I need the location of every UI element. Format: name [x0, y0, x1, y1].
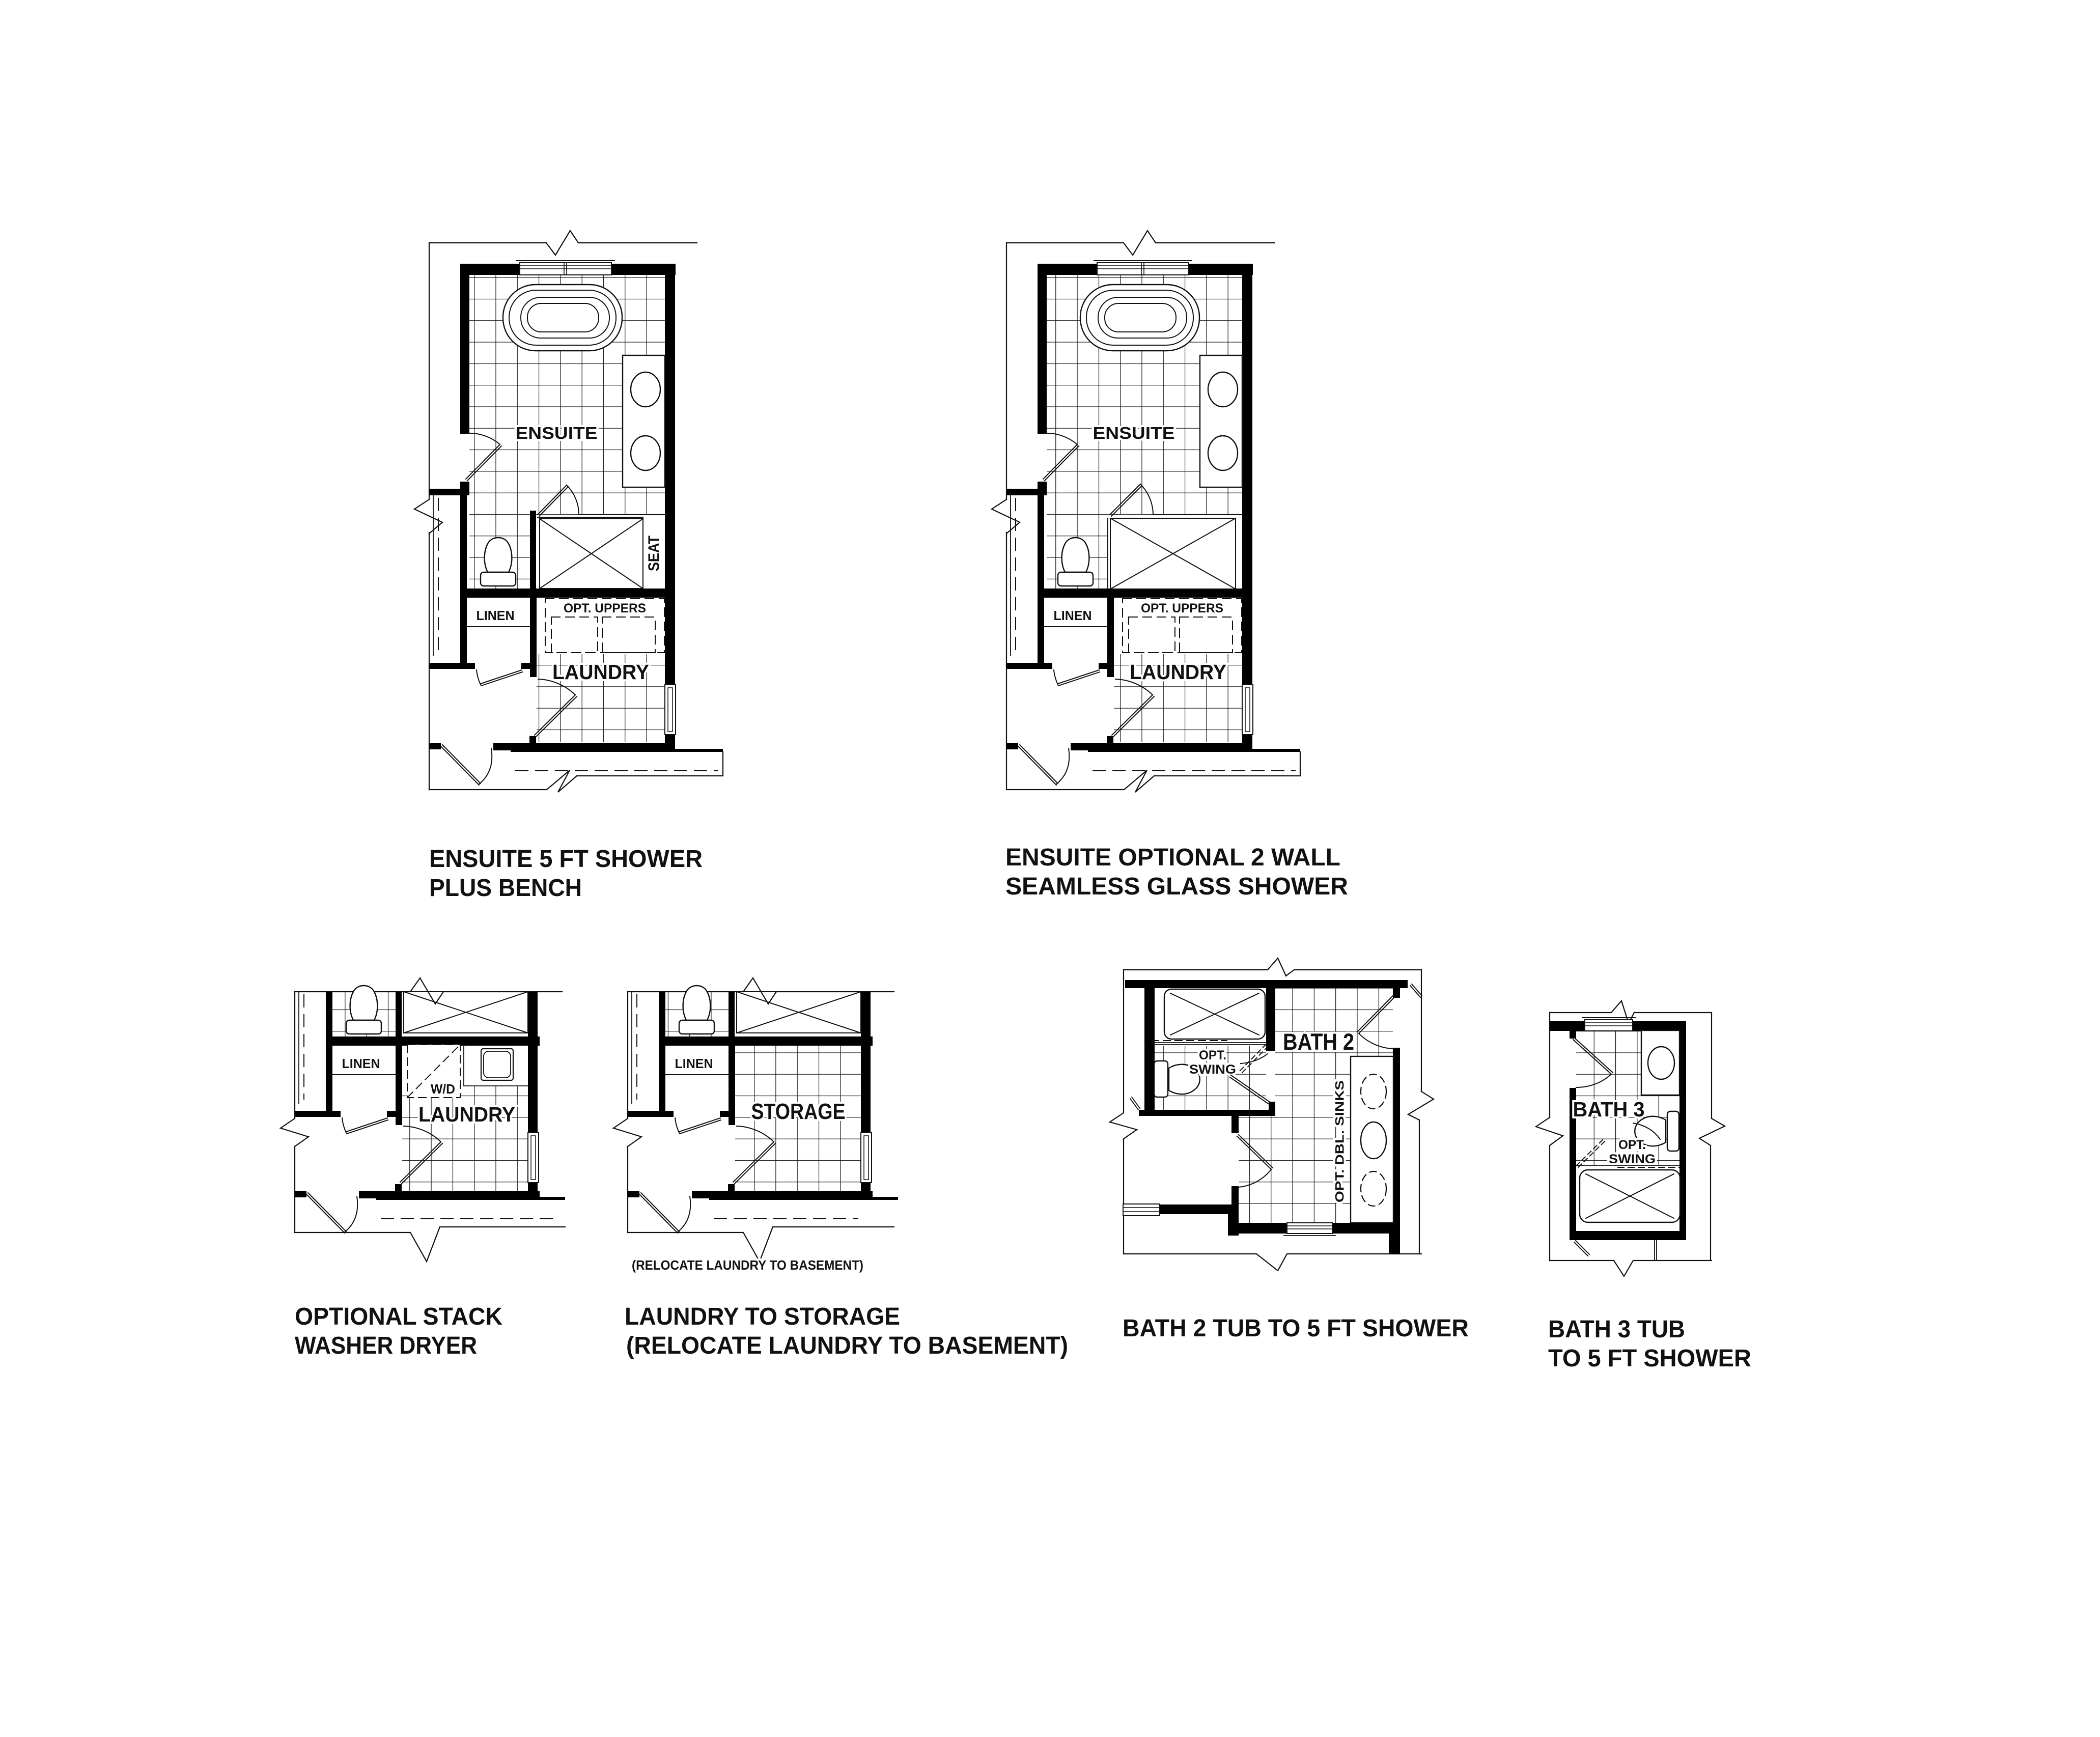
svg-text:PLUS BENCH: PLUS BENCH: [429, 875, 582, 902]
svg-text:(RELOCATE LAUNDRY TO BASEMENT): (RELOCATE LAUNDRY TO BASEMENT): [626, 1332, 1068, 1359]
svg-text:ENSUITE: ENSUITE: [516, 424, 598, 442]
svg-text:BATH 2 TUB TO 5 FT SHOWER: BATH 2 TUB TO 5 FT SHOWER: [1123, 1315, 1469, 1342]
svg-text:BATH 3: BATH 3: [1573, 1098, 1645, 1121]
svg-text:ENSUITE: ENSUITE: [1093, 424, 1175, 442]
svg-text:TO 5 FT SHOWER: TO 5 FT SHOWER: [1548, 1345, 1751, 1372]
svg-text:LINEN: LINEN: [1054, 608, 1092, 623]
svg-text:STORAGE: STORAGE: [751, 1099, 846, 1124]
svg-text:SEAT: SEAT: [645, 536, 663, 571]
svg-text:OPT.: OPT.: [1618, 1138, 1646, 1152]
svg-text:LAUNDRY TO STORAGE: LAUNDRY TO STORAGE: [625, 1303, 900, 1330]
svg-text:OPT. UPPERS: OPT. UPPERS: [1141, 601, 1223, 615]
svg-text:WASHER DRYER: WASHER DRYER: [295, 1332, 477, 1359]
svg-text:LINEN: LINEN: [342, 1056, 380, 1071]
svg-text:LINEN: LINEN: [477, 608, 515, 623]
svg-text:BATH 3 TUB: BATH 3 TUB: [1548, 1316, 1685, 1343]
svg-text:SWING: SWING: [1609, 1152, 1656, 1166]
svg-text:OPT.: OPT.: [1199, 1048, 1226, 1062]
svg-text:LAUNDRY: LAUNDRY: [418, 1103, 515, 1126]
svg-text:W/D: W/D: [431, 1081, 455, 1097]
svg-text:ENSUITE OPTIONAL 2 WALL: ENSUITE OPTIONAL 2 WALL: [1005, 844, 1340, 871]
svg-text:OPT. DBL. SINKS: OPT. DBL. SINKS: [1333, 1080, 1347, 1202]
svg-text:LAUNDRY: LAUNDRY: [552, 660, 649, 684]
svg-text:OPTIONAL STACK: OPTIONAL STACK: [295, 1303, 502, 1330]
svg-text:LAUNDRY: LAUNDRY: [1130, 660, 1226, 684]
svg-text:SWING: SWING: [1189, 1062, 1236, 1077]
svg-text:SEAMLESS GLASS SHOWER: SEAMLESS GLASS SHOWER: [1005, 873, 1348, 900]
svg-text:ENSUITE 5 FT SHOWER: ENSUITE 5 FT SHOWER: [429, 846, 703, 873]
svg-text:BATH 2: BATH 2: [1283, 1029, 1354, 1055]
svg-text:OPT. UPPERS: OPT. UPPERS: [564, 601, 646, 615]
svg-text:(RELOCATE LAUNDRY TO BASEMENT): (RELOCATE LAUNDRY TO BASEMENT): [632, 1257, 863, 1273]
svg-text:LINEN: LINEN: [675, 1056, 713, 1071]
